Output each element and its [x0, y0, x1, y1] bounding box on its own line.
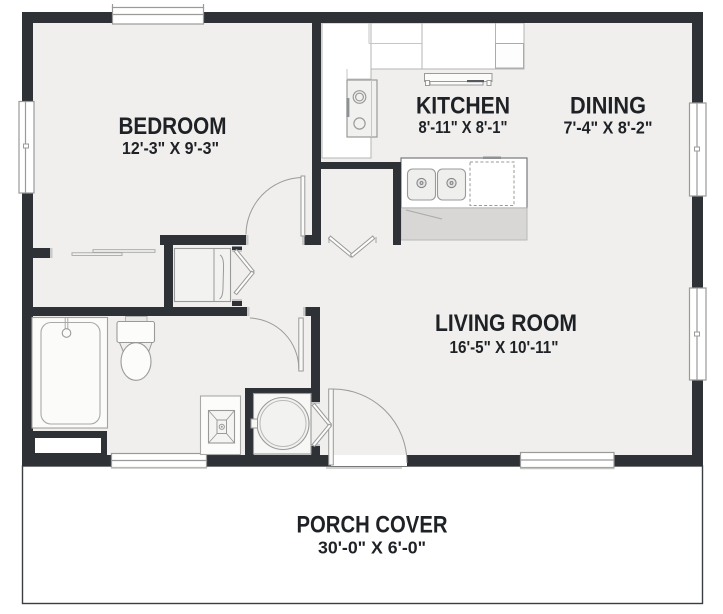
svg-text:LIVING ROOM: LIVING ROOM	[435, 310, 577, 337]
svg-text:30'-0" X 6'-0": 30'-0" X 6'-0"	[318, 538, 426, 558]
svg-text:BEDROOM: BEDROOM	[119, 113, 227, 140]
svg-text:PORCH COVER: PORCH COVER	[297, 512, 448, 539]
svg-text:8'-11" X 8'-1": 8'-11" X 8'-1"	[419, 117, 508, 137]
svg-text:KITCHEN: KITCHEN	[416, 93, 510, 120]
svg-text:12'-3" X 9'-3": 12'-3" X 9'-3"	[122, 138, 219, 158]
svg-text:7'-4" X 8'-2": 7'-4" X 8'-2"	[564, 118, 653, 138]
svg-text:DINING: DINING	[570, 93, 646, 120]
svg-text:16'-5" X 10'-11": 16'-5" X 10'-11"	[450, 337, 559, 357]
